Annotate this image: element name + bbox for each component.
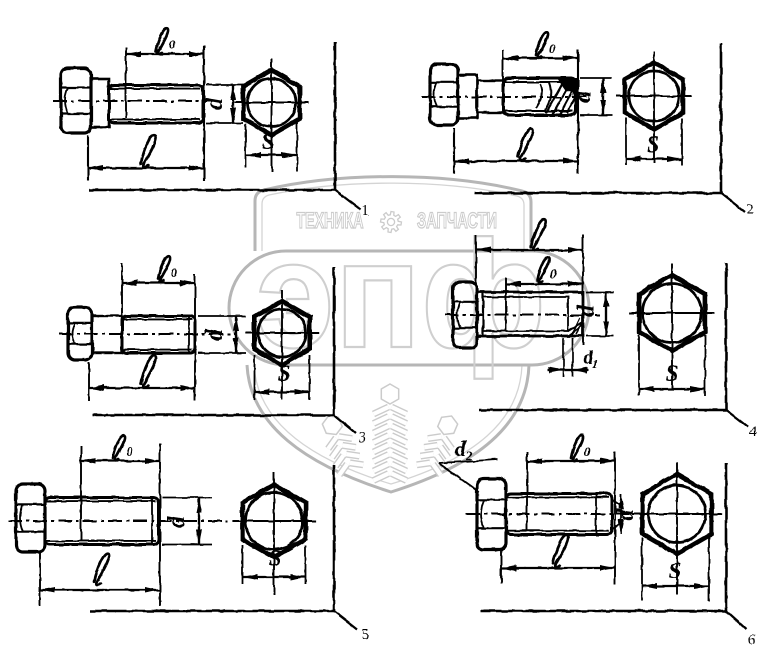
- svg-text:0: 0: [549, 41, 556, 56]
- svg-text:S: S: [278, 361, 291, 386]
- svg-text:5: 5: [361, 627, 369, 643]
- svg-text:d: d: [574, 304, 600, 317]
- svg-text:6: 6: [748, 632, 756, 648]
- svg-text:d: d: [164, 515, 190, 528]
- svg-text:0: 0: [584, 444, 591, 459]
- svg-text:1: 1: [361, 203, 369, 219]
- svg-text:d: d: [570, 90, 596, 103]
- svg-text:0: 0: [550, 266, 557, 281]
- svg-text:0: 0: [169, 37, 176, 52]
- svg-text:d: d: [202, 97, 228, 110]
- svg-text:4: 4: [749, 424, 757, 440]
- svg-text:3: 3: [358, 430, 366, 446]
- svg-text:S: S: [269, 546, 282, 571]
- svg-text:2: 2: [746, 202, 754, 218]
- svg-text:0: 0: [171, 265, 178, 280]
- svg-text:2: 2: [465, 448, 473, 463]
- svg-text:d: d: [202, 328, 228, 341]
- svg-text:1: 1: [592, 357, 598, 371]
- svg-text:S: S: [669, 558, 682, 583]
- svg-text:S: S: [647, 132, 660, 157]
- svg-text:S: S: [262, 129, 275, 154]
- svg-text:S: S: [666, 361, 679, 386]
- svg-text:0: 0: [126, 444, 133, 459]
